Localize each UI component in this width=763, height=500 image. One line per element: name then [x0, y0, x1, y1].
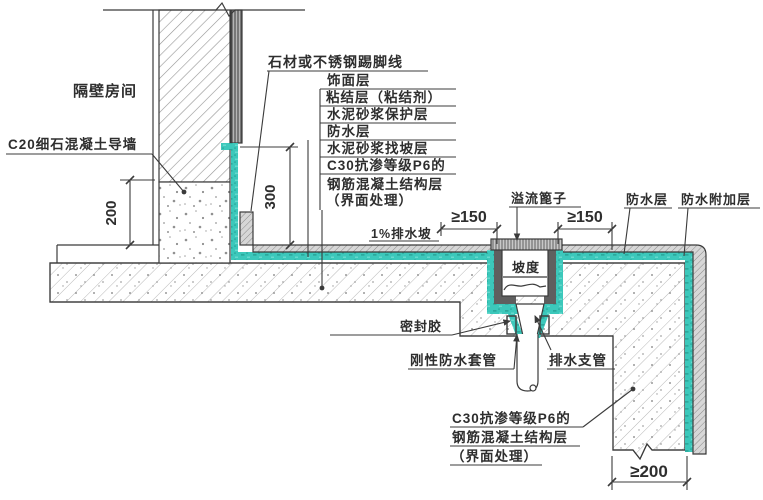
construction-detail-drawing: 隔壁房间 C20细石混凝土导墙 200 300 石材或不锈钢踢脚线 饰面层 粘结…	[0, 0, 763, 500]
pipe-break-symbol	[530, 385, 536, 391]
layer-label-finish: 饰面层	[327, 72, 371, 88]
label-overflow-grate: 溢流篦子	[511, 191, 567, 206]
label-drain-slope: 1%排水坡	[371, 226, 432, 241]
dim-300: 300	[262, 184, 279, 209]
label-guide-wall: C20细石混凝土导墙	[8, 136, 137, 152]
label-structure-note-1: C30抗渗等级P6的	[452, 410, 571, 426]
dim-200-right: ≥200	[630, 462, 668, 481]
dim-150-left: ≥150	[451, 209, 487, 226]
skirting-block	[240, 212, 253, 245]
layer-label-interface: （界面处理）	[326, 192, 413, 208]
layer-label-structure: 钢筋混凝土结构层	[327, 176, 443, 192]
label-structure-note-3: （界面处理）	[451, 448, 538, 464]
layer-label-slope-screed: 水泥砂浆找坡层	[327, 140, 429, 156]
drain-wall-left	[494, 248, 502, 304]
masonry-wall	[159, 10, 230, 182]
label-structure-note-2: 钢筋混凝土结构层	[452, 429, 568, 445]
waterproof-upstand-cap	[221, 143, 238, 150]
label-waterproof-layer: 防水层	[626, 192, 668, 207]
layer-label-waterproof: 防水层	[327, 123, 371, 139]
label-sealant: 密封胶	[399, 319, 442, 334]
layer-label-protection: 水泥砂浆保护层	[327, 106, 429, 122]
label-slope: 坡度	[512, 260, 540, 275]
waterproof-edge-downturn	[685, 252, 693, 452]
label-drain-branch: 排水支管	[549, 352, 607, 368]
guide-wall	[159, 182, 230, 263]
drain-wall-right	[548, 248, 556, 304]
dim-150-right: ≥150	[567, 209, 603, 226]
label-skirting: 石材或不锈钢踢脚线	[267, 54, 403, 70]
wall-finish-layers	[231, 10, 242, 143]
waterproof-floor	[238, 252, 693, 260]
label-rigid-sleeve: 刚性防水套管	[410, 352, 497, 368]
label-waterproof-additional: 防水附加层	[681, 192, 751, 207]
layer-label-bonding: 粘结层（粘结剂）	[326, 89, 442, 105]
drain-pipe	[517, 334, 538, 391]
drain-grate	[491, 239, 562, 250]
waterproof-upstand	[231, 150, 238, 260]
label-adjacent-room: 隔壁房间	[73, 82, 137, 100]
layer-label-c30: C30抗渗等级P6的	[327, 157, 446, 173]
dim-200: 200	[103, 200, 120, 225]
